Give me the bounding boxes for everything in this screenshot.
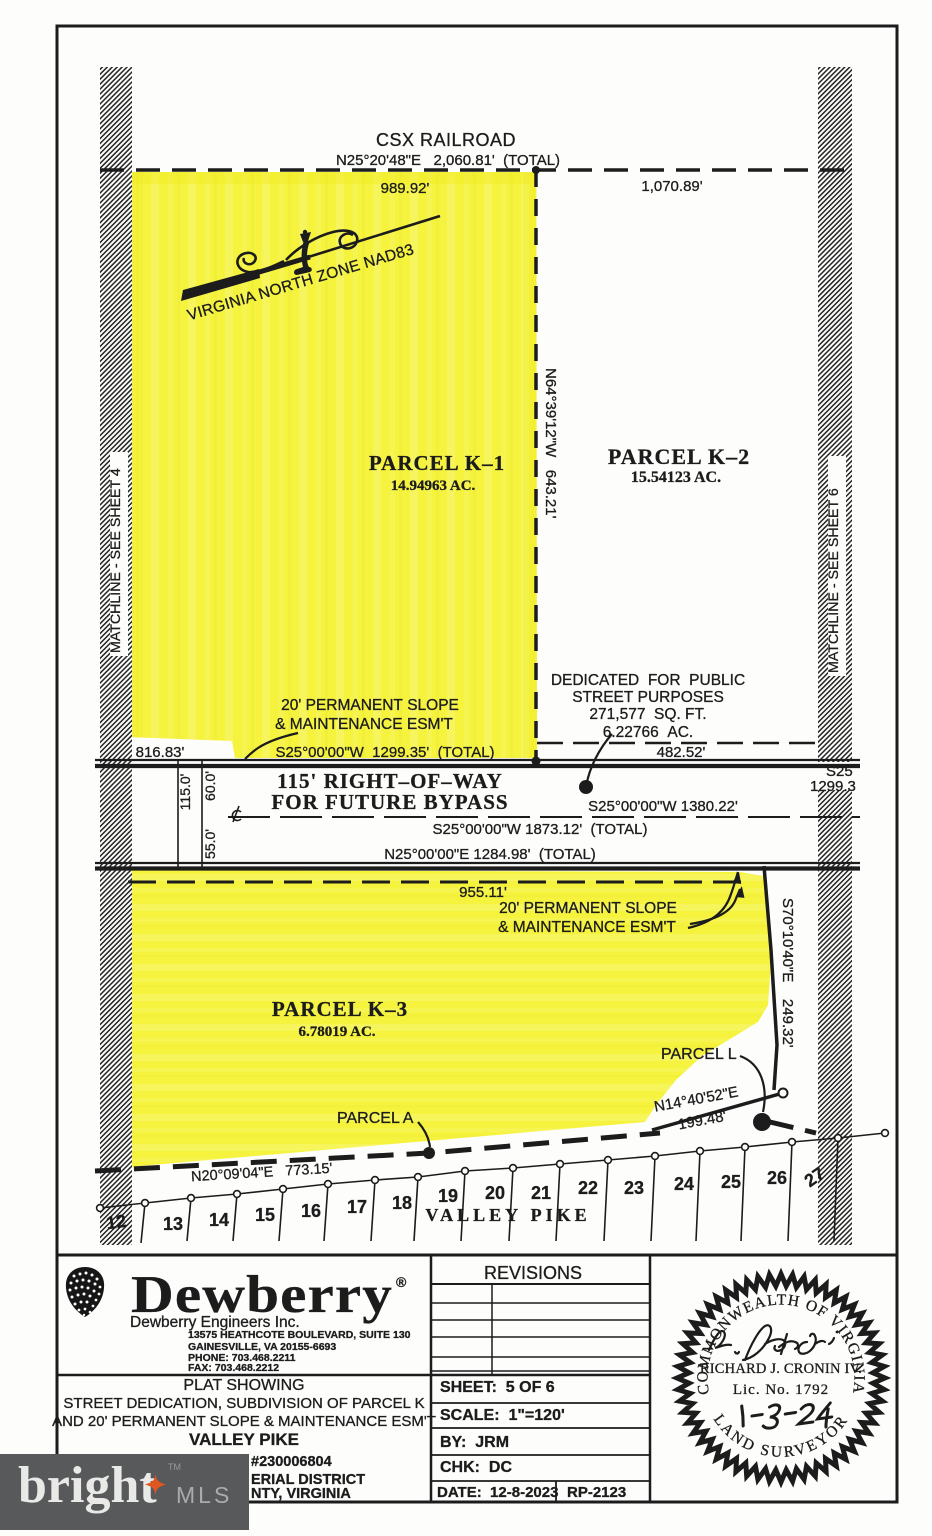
svg-text:DATE: 12-8-2023: DATE: 12-8-2023: [437, 1484, 558, 1501]
svg-text:26: 26: [767, 1168, 787, 1188]
svg-text:MATCHLINE - SEE SHEET 4: MATCHLINE - SEE SHEET 4: [108, 468, 124, 653]
svg-text:22: 22: [578, 1178, 598, 1198]
svg-text:60.0': 60.0': [202, 771, 218, 801]
svg-text:199.48': 199.48': [677, 1108, 728, 1134]
svg-text:CSX RAILROAD: CSX RAILROAD: [376, 130, 516, 150]
svg-text:989.92': 989.92': [381, 180, 430, 197]
svg-text:S70°10'40"E 249.32': S70°10'40"E 249.32': [779, 898, 796, 1048]
svg-text:24: 24: [674, 1174, 694, 1194]
svg-text:BY: JRM: BY: JRM: [440, 1434, 509, 1451]
svg-text:PLAT SHOWING: PLAT SHOWING: [183, 1377, 304, 1394]
svg-text:14.94963 AC.: 14.94963 AC.: [391, 478, 476, 494]
svg-text:N25°20'48"E 2,060.81' (TOTA: N25°20'48"E 2,060.81' (TOTAL): [336, 152, 560, 169]
svg-text:16: 16: [301, 1201, 321, 1221]
svg-text:955.11': 955.11': [459, 884, 507, 901]
svg-text:STREET DEDICATION, SUBDIVISION: STREET DEDICATION, SUBDIVISION OF PARCEL…: [63, 1395, 424, 1412]
svg-text:S25°00'00"W 1299.35' (TOTAL): S25°00'00"W 1299.35' (TOTAL): [275, 744, 494, 761]
svg-text:20: 20: [485, 1183, 505, 1203]
svg-text:MATCHLINE - SEE SHEET 6: MATCHLINE - SEE SHEET 6: [826, 488, 842, 673]
svg-text:PARCEL A: PARCEL A: [337, 1110, 414, 1127]
svg-text:PARCEL K–3: PARCEL K–3: [272, 997, 408, 1021]
svg-text:816.83': 816.83': [136, 744, 185, 761]
svg-text:REVISIONS: REVISIONS: [484, 1263, 582, 1283]
svg-text:271,577 SQ. FT.: 271,577 SQ. FT.: [589, 706, 706, 723]
svg-text:1299.3: 1299.3: [810, 778, 856, 795]
svg-text:Lic. No. 1792: Lic. No. 1792: [733, 1382, 829, 1398]
svg-text:20' PERMANENT SLOPE: 20' PERMANENT SLOPE: [499, 900, 677, 917]
svg-text:13: 13: [163, 1214, 183, 1234]
svg-text:RP-2123: RP-2123: [567, 1484, 626, 1501]
svg-text:13575 HEATHCOTE BOULEVARD, SUI: 13575 HEATHCOTE BOULEVARD, SUITE 130: [188, 1329, 411, 1341]
svg-text:RICHARD J. CRONIN IV.: RICHARD J. CRONIN IV.: [700, 1361, 862, 1377]
svg-text:PARCEL K–1: PARCEL K–1: [369, 451, 505, 475]
svg-text:SCALE: 1"=120': SCALE: 1"=120': [440, 1407, 565, 1424]
svg-text:15: 15: [255, 1205, 275, 1225]
svg-text:PARCEL L: PARCEL L: [661, 1046, 737, 1063]
svg-text:12: 12: [105, 1211, 128, 1234]
svg-text:S25°00'00"W 1380.22': S25°00'00"W 1380.22': [588, 798, 738, 815]
svg-text:VALLEY PIKE: VALLEY PIKE: [425, 1205, 590, 1225]
svg-text:®: ®: [396, 1274, 407, 1290]
svg-text:21: 21: [531, 1183, 551, 1203]
svg-text:CHK: DC: CHK: DC: [440, 1459, 512, 1476]
svg-text:23: 23: [624, 1178, 644, 1198]
svg-text:115.0': 115.0': [177, 774, 193, 811]
svg-text:6.22766 AC.: 6.22766 AC.: [603, 724, 693, 741]
svg-text:VALLEY PIKE: VALLEY PIKE: [189, 1430, 299, 1449]
svg-text:1,070.89': 1,070.89': [641, 178, 702, 195]
svg-text:PARCEL K–2: PARCEL K–2: [608, 444, 750, 469]
svg-text:LAND SURVEYOR: LAND SURVEYOR: [710, 1411, 852, 1461]
svg-text:482.52': 482.52': [657, 744, 706, 761]
svg-text:SHEET: 5 OF 6: SHEET: 5 OF 6: [440, 1379, 555, 1396]
svg-text:25: 25: [721, 1172, 741, 1192]
svg-text:AND 20' PERMANENT SLOPE & MAIN: AND 20' PERMANENT SLOPE & MAINTENANCE ES…: [52, 1413, 436, 1430]
svg-text:18: 18: [392, 1193, 412, 1213]
svg-text:S25°00'00"W 1873.12' (TOTAL): S25°00'00"W 1873.12' (TOTAL): [433, 821, 648, 838]
svg-text:N25°00'00"E 1284.98' (TOTAL): N25°00'00"E 1284.98' (TOTAL): [384, 846, 596, 863]
svg-text:FOR FUTURE BYPASS: FOR FUTURE BYPASS: [271, 790, 508, 814]
svg-text:& MAINTENANCE ESM'T: & MAINTENANCE ESM'T: [498, 919, 676, 936]
svg-text:15.54123 AC.: 15.54123 AC.: [631, 469, 721, 486]
svg-text:N64°39'12"W 643.21': N64°39'12"W 643.21': [542, 368, 559, 519]
svg-text:6.78019 AC.: 6.78019 AC.: [298, 1024, 375, 1040]
svg-text:55.0': 55.0': [202, 829, 218, 859]
svg-text:STREET PURPOSES: STREET PURPOSES: [572, 689, 724, 706]
svg-text:#230006804: #230006804: [251, 1454, 332, 1470]
svg-text:19: 19: [438, 1186, 458, 1206]
svg-text:17: 17: [347, 1197, 367, 1217]
svg-text:DEDICATED FOR PUBLIC: DEDICATED FOR PUBLIC: [551, 672, 745, 689]
svg-text:NTY, VIRGINIA: NTY, VIRGINIA: [251, 1486, 351, 1502]
svg-text:14: 14: [209, 1210, 229, 1230]
svg-text:FAX: 703.468.2212: FAX: 703.468.2212: [188, 1362, 279, 1374]
svg-text:& MAINTENANCE ESM'T: & MAINTENANCE ESM'T: [275, 716, 453, 733]
svg-text:20' PERMANENT SLOPE: 20' PERMANENT SLOPE: [281, 697, 459, 714]
